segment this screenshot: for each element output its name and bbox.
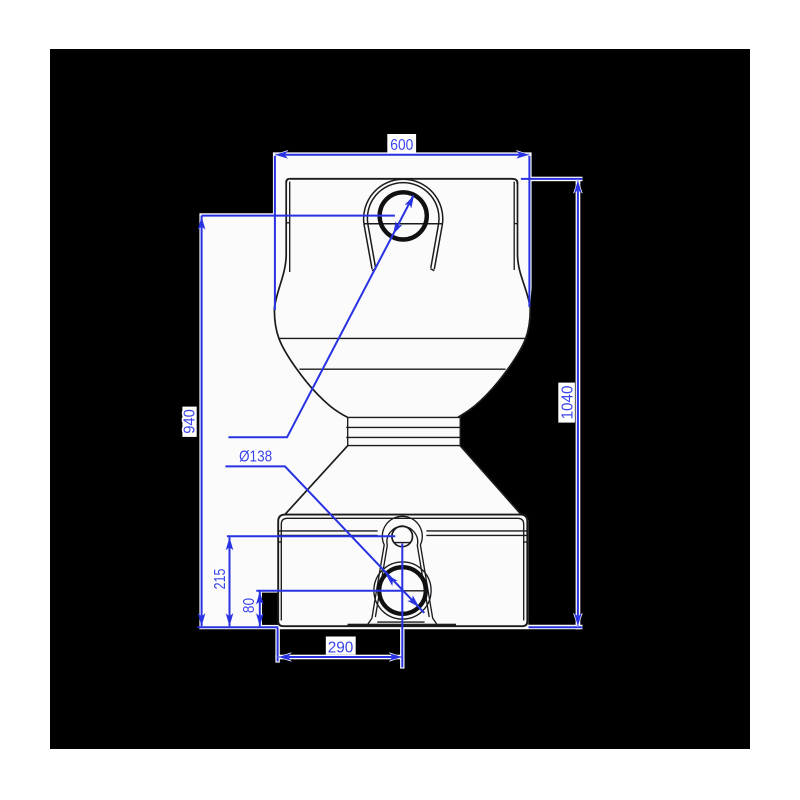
svg-text:940: 940 — [182, 409, 199, 434]
svg-text:600: 600 — [390, 137, 413, 154]
svg-text:290: 290 — [328, 639, 354, 656]
svg-text:215: 215 — [212, 569, 229, 590]
svg-text:1040: 1040 — [559, 386, 576, 420]
svg-text:80: 80 — [241, 598, 258, 613]
svg-text:Ø138: Ø138 — [239, 448, 272, 465]
